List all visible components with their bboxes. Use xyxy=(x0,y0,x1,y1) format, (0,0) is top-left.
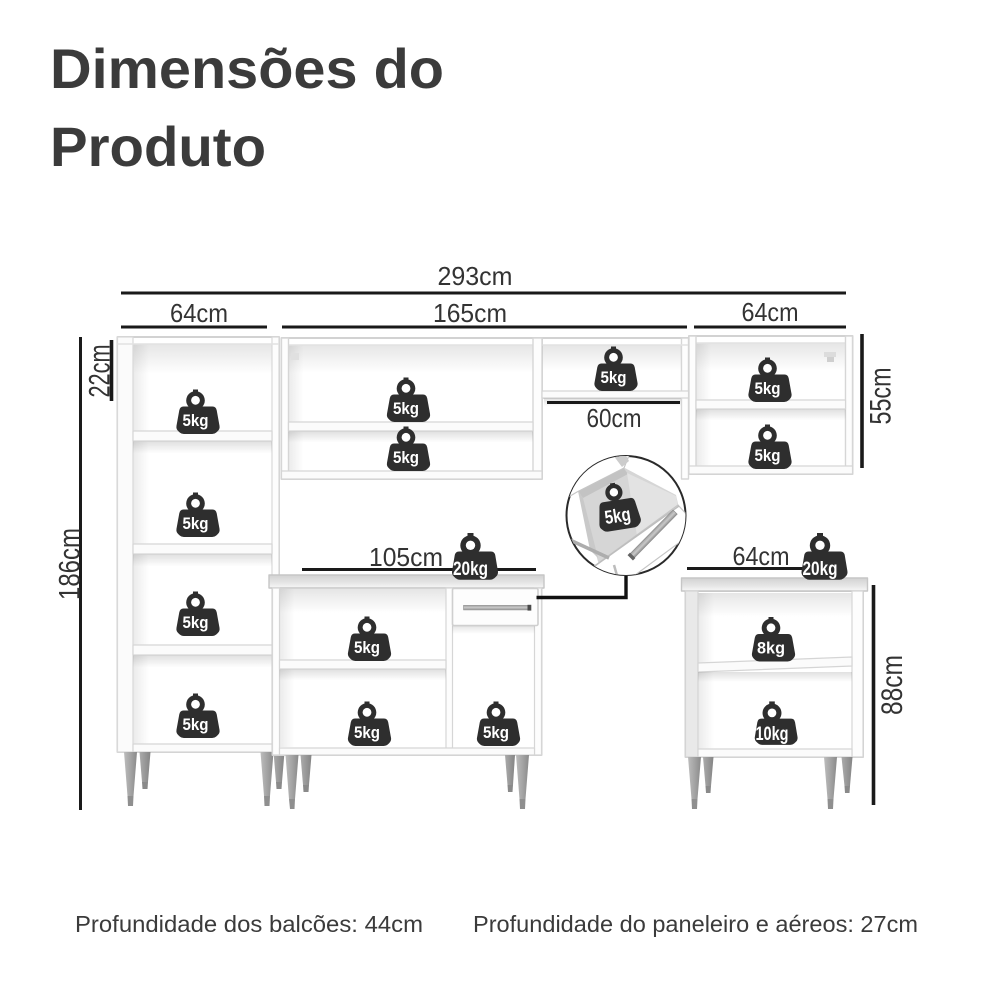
svg-text:Produto: Produto xyxy=(50,115,266,178)
svg-text:Dimensões do: Dimensões do xyxy=(50,37,444,100)
svg-text:5kg: 5kg xyxy=(601,368,627,387)
svg-text:105cm: 105cm xyxy=(369,542,443,572)
svg-text:5kg: 5kg xyxy=(393,399,419,418)
svg-text:20kg: 20kg xyxy=(803,558,838,580)
svg-text:64cm: 64cm xyxy=(742,297,799,327)
svg-text:5kg: 5kg xyxy=(393,448,419,467)
svg-text:5kg: 5kg xyxy=(183,411,209,430)
svg-text:5kg: 5kg xyxy=(183,613,209,632)
svg-text:8kg: 8kg xyxy=(757,639,785,658)
svg-text:60cm: 60cm xyxy=(587,403,642,433)
svg-text:5kg: 5kg xyxy=(755,379,781,398)
svg-text:64cm: 64cm xyxy=(170,298,228,328)
svg-text:20kg: 20kg xyxy=(453,558,488,580)
svg-text:Profundidade do paneleiro e aé: Profundidade do paneleiro e aéreos: 27cm xyxy=(473,911,918,937)
svg-text:88cm: 88cm xyxy=(876,655,909,715)
svg-text:55cm: 55cm xyxy=(865,368,898,425)
svg-text:5kg: 5kg xyxy=(755,446,781,465)
svg-text:165cm: 165cm xyxy=(433,298,507,328)
svg-text:5kg: 5kg xyxy=(354,723,380,742)
svg-text:5kg: 5kg xyxy=(183,715,209,734)
svg-text:22cm: 22cm xyxy=(84,345,117,398)
svg-text:5kg: 5kg xyxy=(354,638,380,657)
svg-text:10kg: 10kg xyxy=(756,724,789,745)
svg-text:186cm: 186cm xyxy=(54,528,87,600)
svg-text:5kg: 5kg xyxy=(183,514,209,533)
svg-text:Profundidade dos balcões: 44cm: Profundidade dos balcões: 44cm xyxy=(75,911,423,937)
svg-text:5kg: 5kg xyxy=(603,504,632,529)
svg-text:64cm: 64cm xyxy=(733,541,790,571)
svg-text:5kg: 5kg xyxy=(483,723,509,742)
svg-text:293cm: 293cm xyxy=(438,261,513,291)
